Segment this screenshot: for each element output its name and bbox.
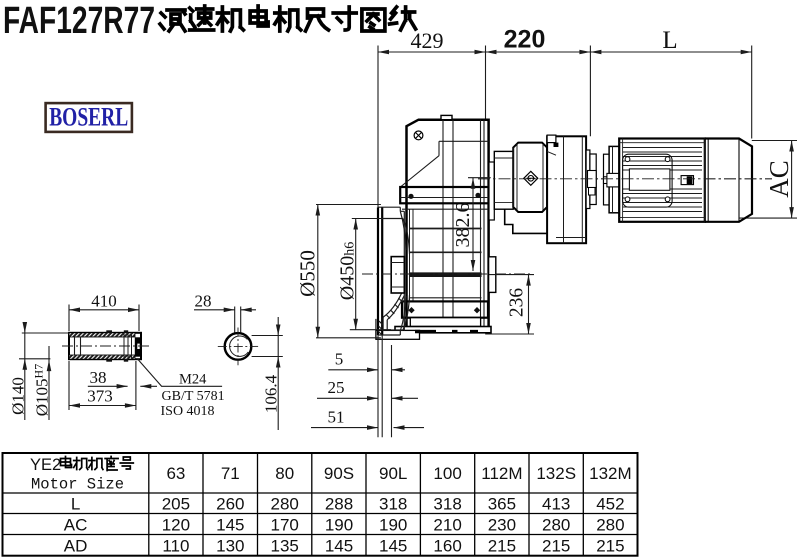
svg-text:145: 145 [379,537,407,556]
svg-text:230: 230 [488,516,516,535]
svg-text:236: 236 [507,288,528,318]
svg-text:71: 71 [221,464,240,483]
svg-text:280: 280 [596,516,624,535]
svg-text:318: 318 [379,495,407,514]
svg-text:280: 280 [271,495,299,514]
svg-text:429: 429 [411,28,444,53]
svg-text:25: 25 [328,378,345,397]
svg-text:100: 100 [433,464,461,483]
svg-text:220: 220 [504,26,546,54]
svg-text:90S: 90S [324,464,354,483]
svg-text:80: 80 [275,464,294,483]
svg-text:112M: 112M [481,464,522,483]
svg-text:28: 28 [195,292,212,311]
svg-text:215: 215 [596,537,624,556]
svg-text:L: L [662,27,677,54]
svg-text:AD: AD [64,537,88,556]
svg-text:110: 110 [162,537,189,556]
svg-text:170: 170 [271,516,299,535]
svg-text:M24: M24 [179,372,207,388]
svg-text:106.4: 106.4 [262,374,281,413]
svg-text:51: 51 [328,408,345,427]
svg-text:AC: AC [64,516,88,535]
svg-text:YE2: YE2 [30,456,61,474]
svg-text:BOSERL: BOSERL [49,103,128,132]
svg-text:Ø140: Ø140 [9,377,28,415]
svg-text:160: 160 [433,537,461,556]
svg-text:FAF127R77: FAF127R77 [3,0,155,42]
svg-text:365: 365 [488,495,516,514]
svg-text:GB/T 5781: GB/T 5781 [162,389,225,404]
svg-text:63: 63 [166,464,185,483]
svg-text:38: 38 [90,368,107,387]
svg-text:ISO 4018: ISO 4018 [161,404,215,419]
svg-text:260: 260 [216,495,244,514]
svg-text:Ø550: Ø550 [296,250,320,297]
svg-text:318: 318 [433,495,461,514]
svg-text:452: 452 [596,495,624,514]
svg-text:L: L [71,495,80,514]
svg-text:190: 190 [379,516,407,535]
svg-text:382.6: 382.6 [452,203,474,248]
svg-text:205: 205 [162,495,190,514]
svg-text:145: 145 [216,516,244,535]
svg-text:410: 410 [91,292,117,311]
svg-text:135: 135 [271,537,299,556]
svg-text:215: 215 [542,537,570,556]
svg-text:132S: 132S [536,464,576,483]
svg-text:190: 190 [325,516,353,535]
svg-text:373: 373 [87,387,113,406]
svg-text:210: 210 [433,516,461,535]
svg-text:90L: 90L [379,464,407,483]
svg-text:130: 130 [216,537,244,556]
svg-text:280: 280 [542,516,570,535]
svg-text:5: 5 [335,350,344,369]
svg-text:132M: 132M [589,464,632,483]
svg-text:215: 215 [488,537,516,556]
svg-text:288: 288 [325,495,353,514]
svg-text:120: 120 [162,516,190,535]
svg-text:413: 413 [542,495,570,514]
svg-text:145: 145 [325,537,353,556]
svg-text:Motor Size: Motor Size [31,476,124,494]
